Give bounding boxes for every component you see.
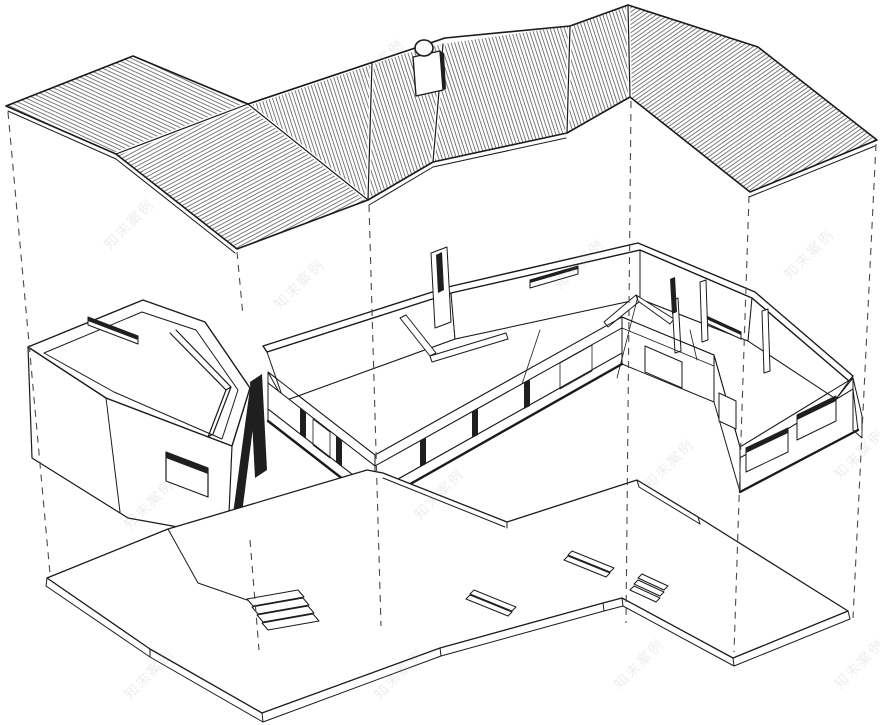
ground-slab [47, 470, 848, 713]
drawing-canvas: 知末案例 知末案例 知末案例 知末案例 知末案例 知末案例 知末案例 知末案例 … [0, 0, 880, 725]
watermark: 知末案例 [781, 226, 838, 283]
watermark: 知末案例 [831, 426, 880, 483]
exploded-axonometric-drawing: 知末案例 知末案例 知末案例 知末案例 知末案例 知末案例 知末案例 知末案例 … [0, 0, 880, 725]
watermark: 知末案例 [271, 256, 328, 313]
watermark: 知末案例 [101, 196, 158, 253]
projection-line [853, 144, 876, 618]
watermark: 知末案例 [121, 476, 178, 533]
watermark: 知末案例 [641, 436, 698, 493]
base-layer [46, 470, 850, 722]
watermark: 知末案例 [121, 646, 178, 703]
projection-line [237, 252, 243, 316]
watermark: 知末案例 [831, 636, 880, 693]
roof-facet [628, 5, 877, 192]
watermark: 知末案例 [611, 636, 668, 693]
chimney-flue [415, 40, 433, 56]
floor-west-shadow [250, 374, 267, 478]
